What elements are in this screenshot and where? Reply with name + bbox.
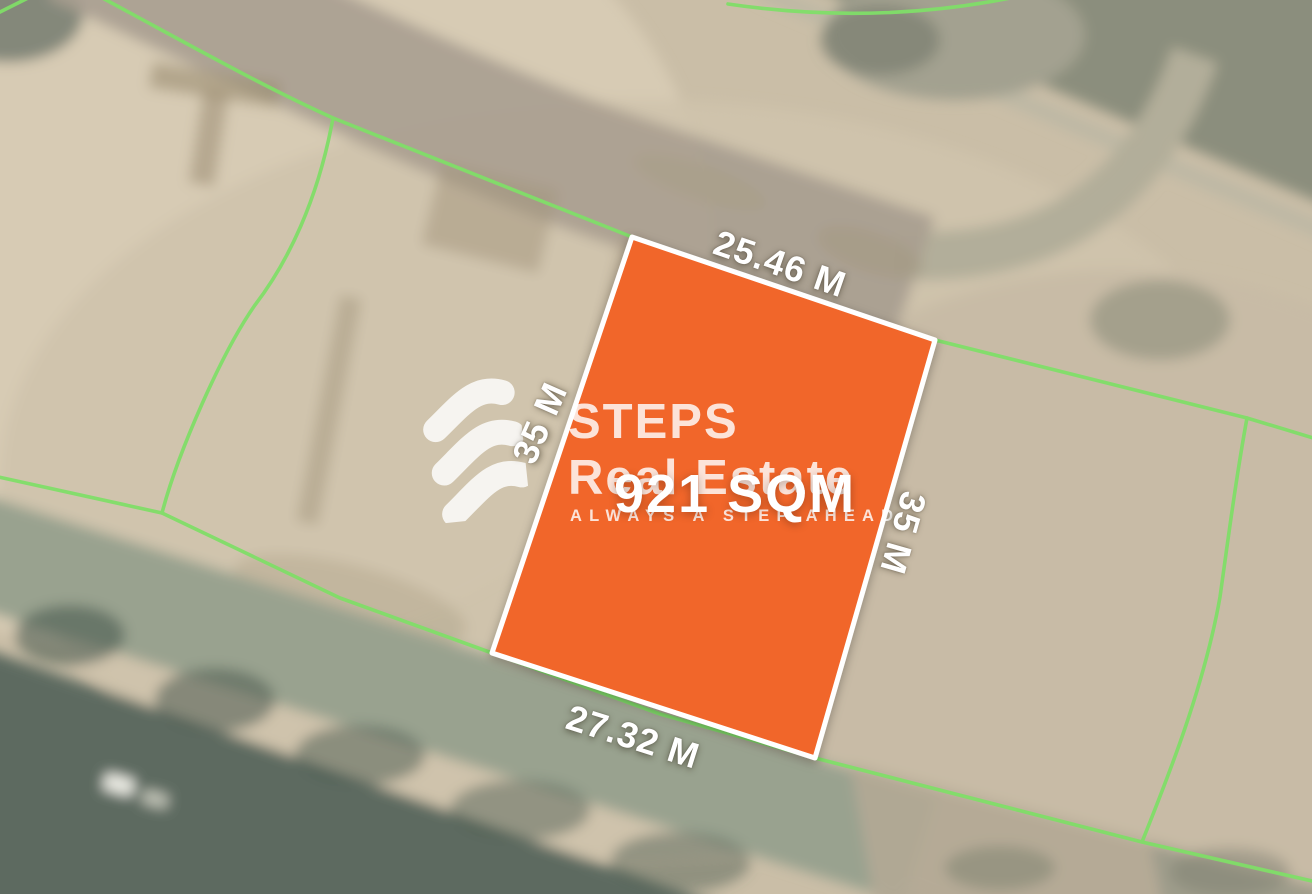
plot-area-label: 921 SQM: [614, 467, 856, 521]
satellite-plot-map: STEPS Real Estate ALWAYS A STEP AHEAD 92…: [0, 0, 1312, 894]
parcel-boundary-line: [95, 0, 632, 237]
parcel-boundary-line: [935, 340, 1312, 440]
parcel-boundary-line: [1142, 418, 1247, 842]
parcel-boundary-line: [0, 0, 36, 14]
parcel-boundary-line: [728, 0, 1020, 13]
parcel-boundary-line: [162, 118, 333, 513]
